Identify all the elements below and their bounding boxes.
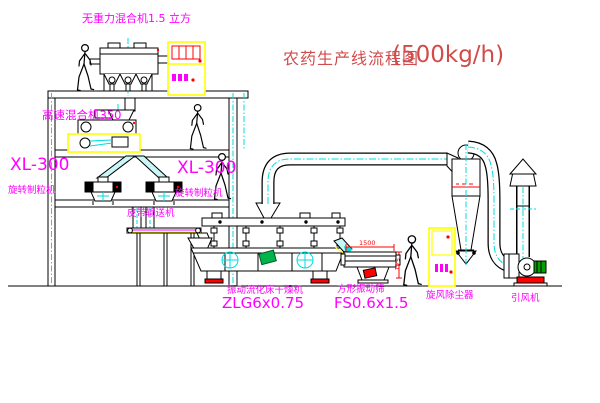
fan-motor (534, 261, 546, 273)
worker-figure-second-floor (190, 105, 206, 150)
top-floor-slab (48, 91, 248, 98)
stack-rain-cap (510, 159, 536, 174)
fluid-bed-dryer (188, 203, 345, 283)
worker-figure-ground (404, 236, 421, 286)
label-dryer-model: ZLG6x0.75 (222, 296, 304, 311)
cyclone-dust-collector (452, 144, 480, 267)
label-fan: 引风机 (511, 294, 540, 304)
production-line-drawing: 农药生产线流程图 (500kg/h) 无重力混合机1.5 立方 高速混合机350… (0, 0, 600, 403)
dimension-sieve-length: 1500 (359, 240, 376, 247)
exhaust-duct (268, 153, 458, 204)
dimension-sieve-height: 541 (394, 258, 401, 270)
label-belt-conveyor: 皮带输送机 (127, 209, 175, 219)
high-speed-mixer (68, 98, 140, 152)
cabinet-display-mark (435, 264, 438, 272)
label-sieve-model: FS0.6x1.5 (334, 296, 408, 311)
worker-figure-top-floor (78, 45, 94, 91)
control-cabinet-top (168, 42, 205, 95)
label-cyclone: 旋风除尘器 (426, 291, 474, 301)
label-granulator-center-model: XL-300 (177, 160, 236, 177)
dryer-feet (205, 271, 329, 283)
label-granulator-center-name: 旋转制粒机 (175, 189, 223, 199)
drawing-title-capacity: (500kg/h) (392, 44, 504, 67)
induced-draft-fan (504, 254, 547, 286)
cabinet-display-mark (172, 74, 176, 81)
label-granulator-left-model: XL-300 (10, 157, 69, 174)
label-gravity-free-mixer: 无重力混合机1.5 立方 (82, 13, 191, 24)
label-high-speed-mixer: 高速混合机350 (42, 110, 121, 122)
third-floor-slab (55, 200, 229, 207)
label-granulator-left-name: 旋转制粒机 (8, 186, 56, 196)
fan-base (517, 277, 544, 283)
exhaust-stack (510, 159, 536, 262)
control-cabinet-bottom (429, 228, 455, 286)
y-chute (97, 156, 168, 178)
gravity-free-mixer (90, 38, 168, 96)
red-marker-dot (157, 49, 159, 51)
dryer-exhaust-cone (256, 203, 280, 218)
